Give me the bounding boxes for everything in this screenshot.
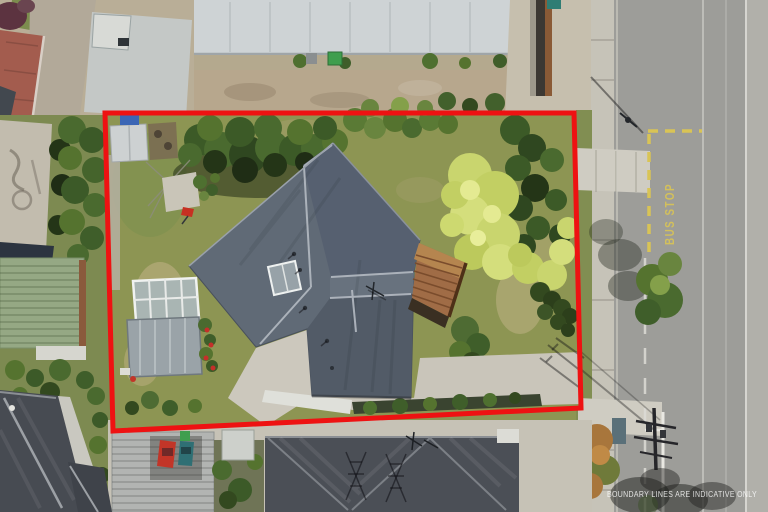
pale-roof-building-left [84,12,192,118]
concrete-court [0,120,52,252]
green-wheelie-bin [328,52,342,65]
skylight [268,261,301,295]
small-pale-shed [222,430,254,460]
blue-tarp [120,114,139,125]
hip-roof-house [265,432,519,512]
carport-with-cars [150,431,202,480]
white-wall [36,346,86,360]
aerial-property-photo: BUS STOP [0,0,768,512]
large-white-roof [194,0,553,71]
aerial-scene: BUS STOP [0,0,768,512]
greenhouse [133,278,199,321]
green-corrugated-roof [0,258,86,348]
vehicle-crossing-top [576,148,650,193]
white-vehicle [497,429,519,443]
watermark-text: BOUNDARY LINES ARE INDICATIVE ONLY [607,490,757,499]
teal-object [547,0,561,9]
bus-stop-road-text: BUS STOP [662,183,677,245]
utility-vehicle [612,418,626,444]
garden-shed-lower [127,317,202,377]
wooden-fence [530,0,552,96]
